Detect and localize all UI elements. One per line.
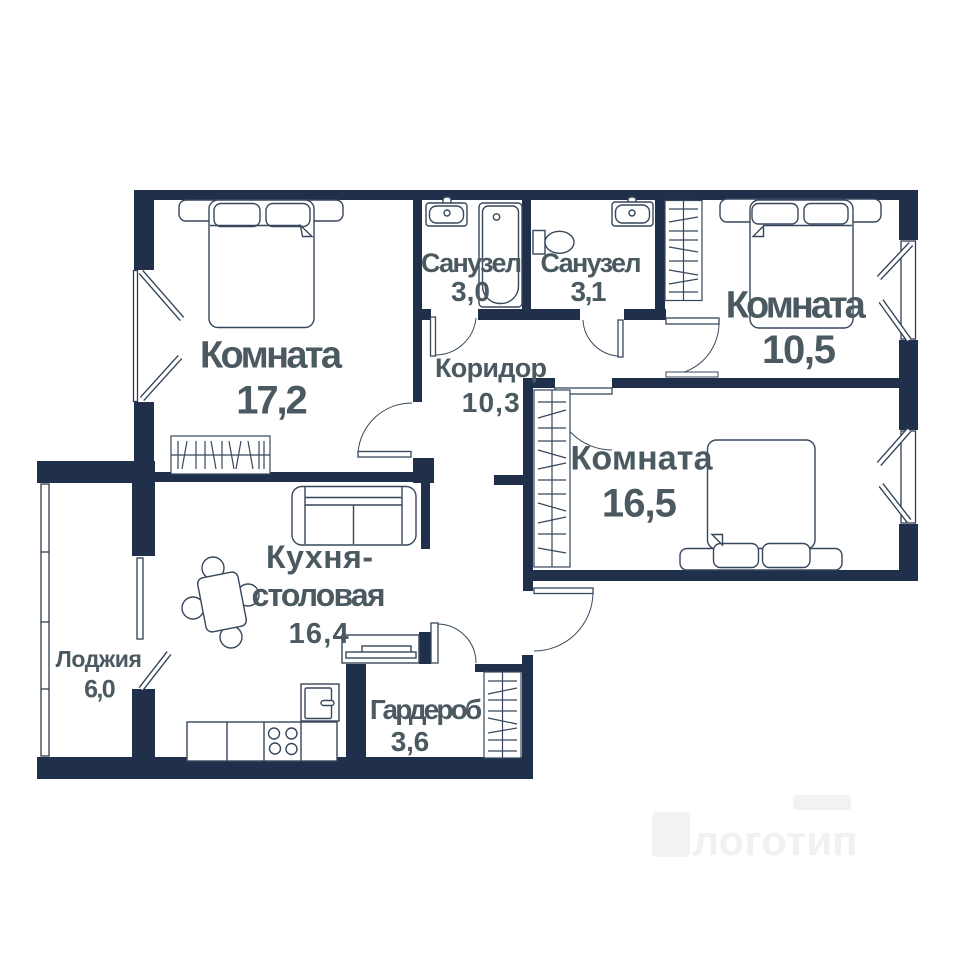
svg-text:Комната: Комната (571, 440, 714, 478)
svg-text:Комната: Комната (200, 335, 343, 377)
svg-text:3,0: 3,0 (451, 276, 490, 307)
svg-text:Коридор: Коридор (435, 353, 547, 383)
svg-text:Санузел: Санузел (421, 248, 522, 278)
svg-text:6,0: 6,0 (84, 676, 116, 704)
svg-text:3,6: 3,6 (391, 726, 430, 757)
svg-text:Лоджия: Лоджия (56, 646, 142, 672)
svg-text:Санузел: Санузел (541, 248, 642, 278)
svg-text:3,1: 3,1 (571, 276, 607, 307)
svg-text:логотип: логотип (692, 817, 857, 864)
svg-text:10,3: 10,3 (462, 387, 520, 418)
svg-text:Кухня-: Кухня- (266, 539, 373, 575)
svg-text:10,5: 10,5 (762, 328, 836, 372)
svg-text:16,5: 16,5 (602, 482, 677, 526)
svg-text:Гардероб: Гардероб (370, 694, 482, 725)
svg-text:Комната: Комната (726, 285, 867, 327)
svg-text:16,4: 16,4 (289, 618, 349, 650)
svg-text:столовая: столовая (252, 577, 386, 613)
svg-text:17,2: 17,2 (236, 379, 308, 423)
